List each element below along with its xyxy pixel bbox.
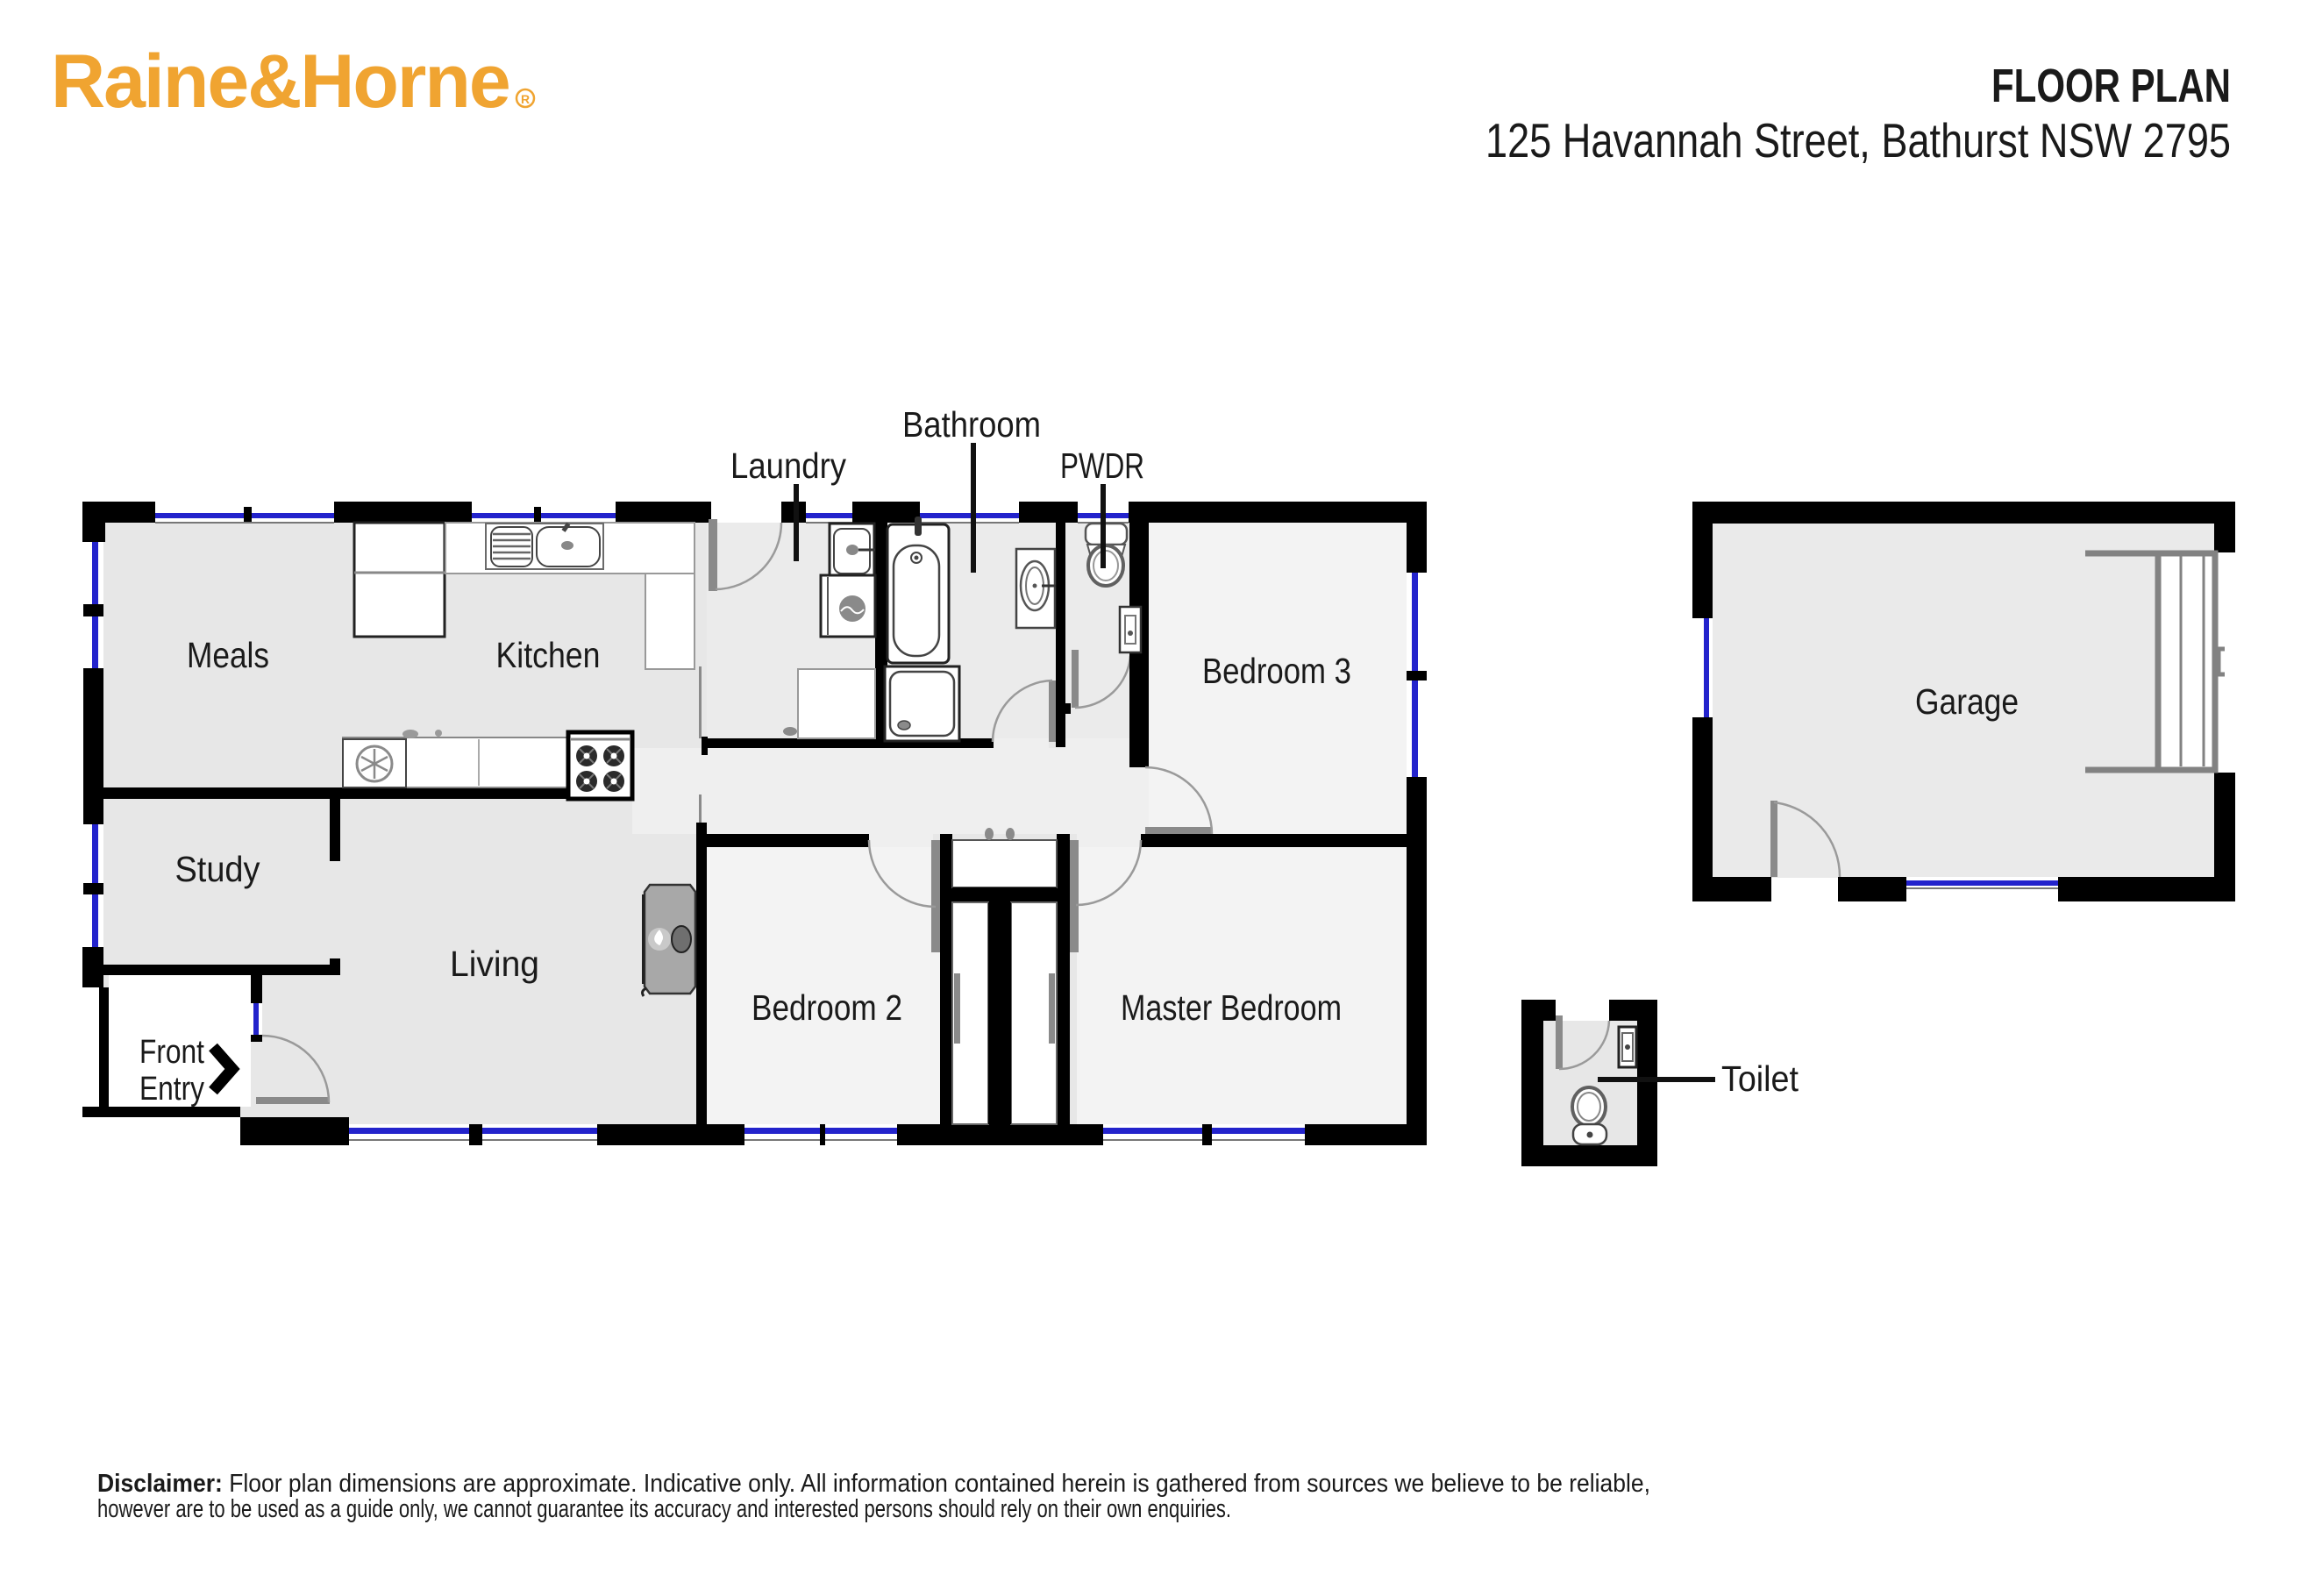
svg-text:Disclaimer: Floor plan dimensi: Disclaimer: Floor plan dimensions are ap… (97, 1470, 1650, 1498)
svg-text:FLOOR PLAN: FLOOR PLAN (1991, 60, 2231, 112)
svg-text:Living: Living (450, 944, 539, 984)
svg-text:Meals: Meals (187, 635, 269, 675)
svg-text:Front: Front (139, 1034, 204, 1071)
svg-text:Raine&Horne: Raine&Horne (51, 39, 509, 124)
svg-text:PWDR: PWDR (1060, 445, 1144, 486)
svg-text:however are to be used as a gu: however are to be used as a guide only, … (97, 1495, 1231, 1523)
svg-text:Entry: Entry (139, 1071, 204, 1108)
svg-text:Bedroom 3: Bedroom 3 (1202, 651, 1351, 691)
svg-text:Laundry: Laundry (730, 445, 846, 486)
svg-text:Study: Study (175, 849, 260, 889)
svg-text:Kitchen: Kitchen (496, 635, 601, 675)
svg-text:Bathroom: Bathroom (902, 404, 1041, 445)
svg-text:Toilet: Toilet (1721, 1058, 1799, 1099)
svg-text:Master Bedroom: Master Bedroom (1121, 987, 1342, 1028)
svg-text:Bedroom 2: Bedroom 2 (752, 987, 902, 1028)
svg-text:125 Havannah Street, Bathurst: 125 Havannah Street, Bathurst NSW 2795 (1485, 113, 2231, 167)
svg-text:Garage: Garage (1915, 681, 2019, 722)
svg-text:R: R (521, 92, 530, 106)
